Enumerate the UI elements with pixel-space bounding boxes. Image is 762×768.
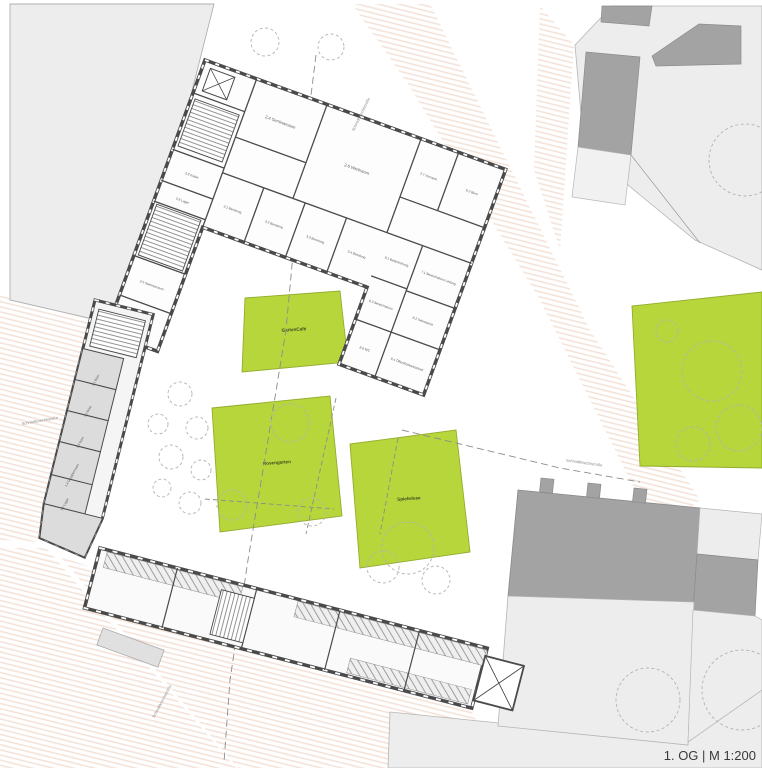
context-building-east-roof — [693, 554, 758, 616]
floor-plan-canvas: GartenCafé Rosengarten Spielwiese — [0, 0, 762, 768]
chimney-notch — [540, 478, 554, 493]
chimney-notch — [633, 488, 647, 503]
context-annex-northeast — [572, 147, 631, 205]
drawing-title: 1. OG | M 1:200 — [664, 748, 756, 763]
context-building-east-light — [697, 508, 762, 560]
garden-area-east — [632, 292, 762, 468]
chimney-notch — [587, 483, 601, 498]
context-building-southeast-body — [498, 596, 694, 745]
context-roof-dark-a — [578, 52, 640, 155]
context-building-southeast-roof — [508, 490, 700, 602]
